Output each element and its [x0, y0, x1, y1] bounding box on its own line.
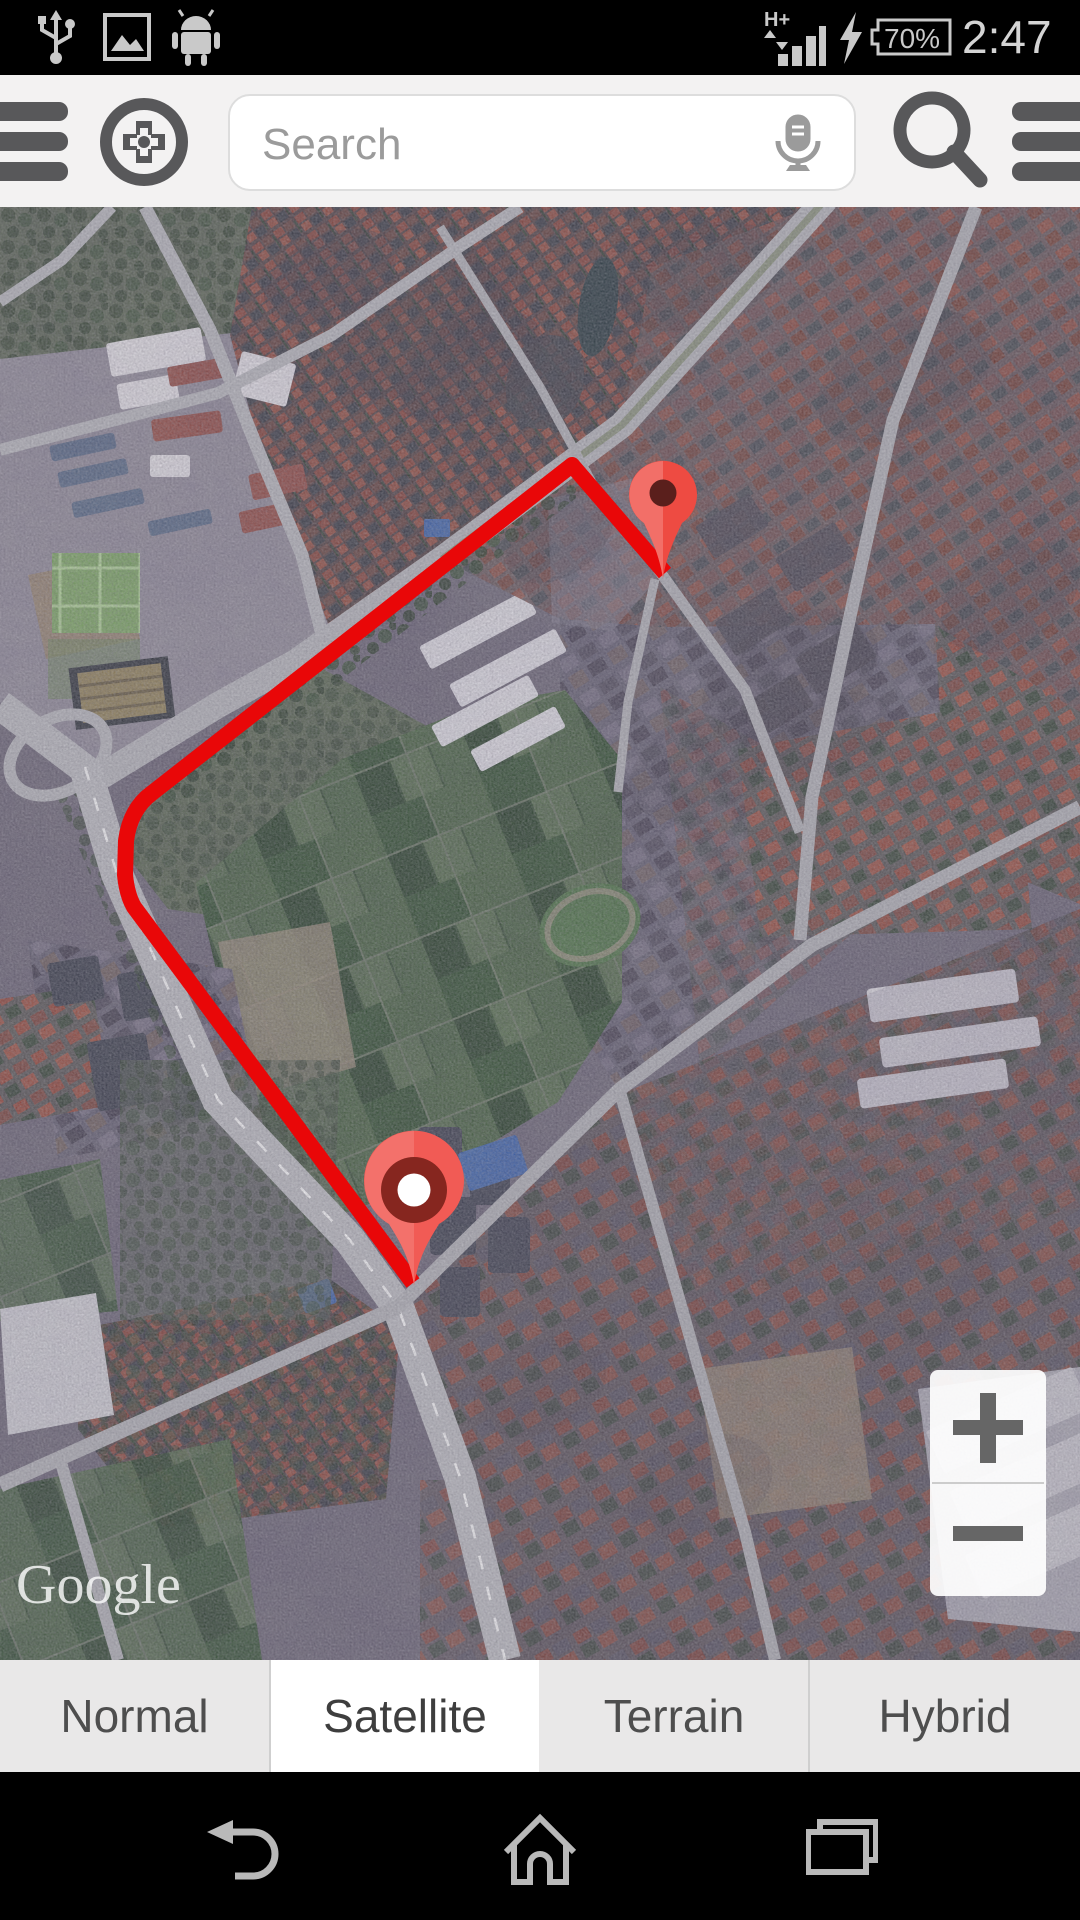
- svg-text:H+: H+: [764, 9, 790, 31]
- svg-text:70%: 70%: [884, 23, 940, 54]
- svg-text:Google: Google: [16, 1554, 181, 1616]
